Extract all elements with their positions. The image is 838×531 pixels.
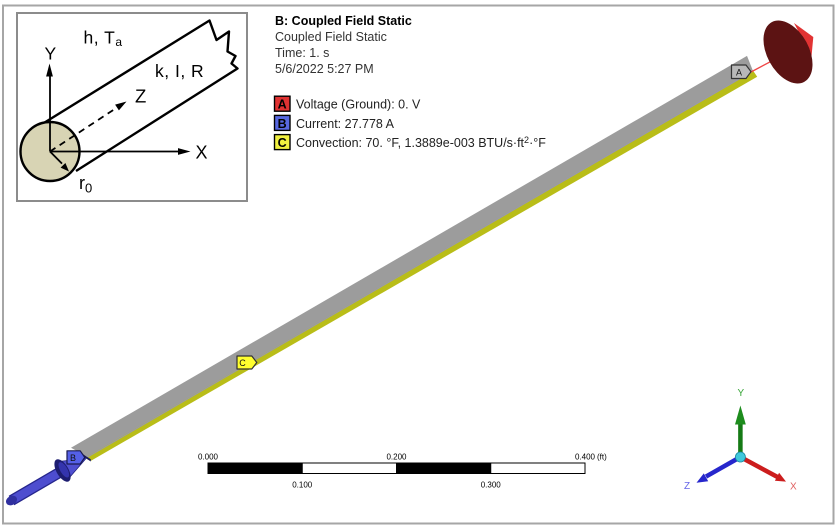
svg-text:Z: Z <box>135 86 146 107</box>
svg-text:Time: 1. s: Time: 1. s <box>275 46 329 60</box>
svg-text:Voltage (Ground): 0. V: Voltage (Ground): 0. V <box>296 98 421 112</box>
svg-text:B: B <box>70 453 76 463</box>
svg-text:Current: 27.778 A: Current: 27.778 A <box>296 117 395 131</box>
svg-text:0.000: 0.000 <box>198 453 219 462</box>
svg-text:0.200: 0.200 <box>386 453 407 462</box>
svg-text:C: C <box>239 358 246 368</box>
svg-text:0.400: 0.400 <box>575 453 596 462</box>
svg-text:Z: Z <box>684 481 690 492</box>
svg-text:Convection: 70. °F, 1.3889e-00: Convection: 70. °F, 1.3889e-003 BTU/s·ft… <box>296 135 546 150</box>
svg-text:X: X <box>790 482 797 493</box>
svg-text:A: A <box>736 67 742 77</box>
svg-text:0.300: 0.300 <box>481 481 502 490</box>
svg-text:Coupled Field Static: Coupled Field Static <box>275 30 387 44</box>
svg-text:k, I, R: k, I, R <box>155 61 204 81</box>
svg-text:X: X <box>196 143 208 163</box>
svg-text:Y: Y <box>738 388 745 399</box>
svg-text:0.100: 0.100 <box>292 481 313 490</box>
svg-text:B: Coupled Field Static: B: Coupled Field Static <box>275 14 412 28</box>
svg-text:B: B <box>278 117 287 131</box>
svg-text:A: A <box>278 98 287 112</box>
svg-text:C: C <box>278 136 287 150</box>
svg-text:(ft): (ft) <box>597 453 607 462</box>
svg-text:5/6/2022 5:27 PM: 5/6/2022 5:27 PM <box>275 62 374 76</box>
svg-text:Y: Y <box>45 44 57 64</box>
